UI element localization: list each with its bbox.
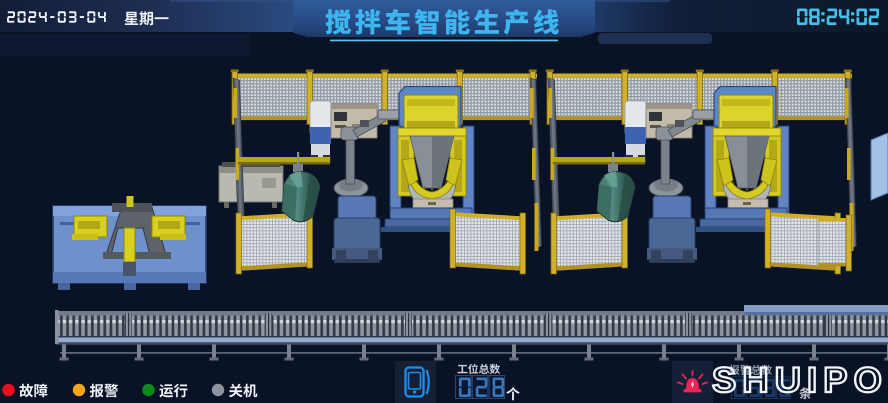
svg-text:SHUIPO: SHUIPO: [712, 360, 888, 400]
